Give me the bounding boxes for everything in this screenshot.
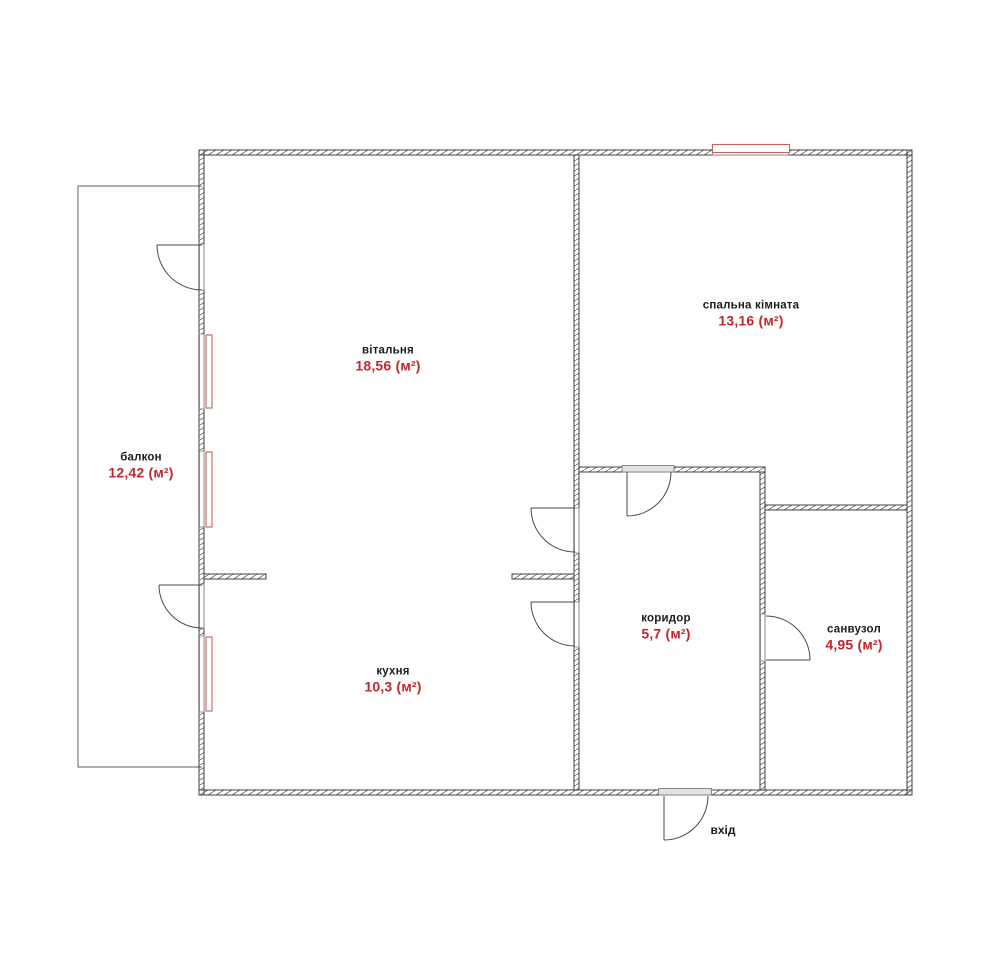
opening-living-balcony (200, 244, 205, 290)
wall-top (199, 150, 912, 155)
wall-bathroom-top (765, 505, 907, 510)
door-living-balcony (157, 245, 202, 290)
floor-plan-page: вітальня 18,56 (м²) спальна кімната 13,1… (0, 0, 999, 977)
window-section-kitchen (200, 636, 205, 712)
window-marks (206, 145, 790, 712)
outer-walls (199, 150, 912, 795)
door-kitchen-corridor (531, 602, 575, 646)
interior-walls (204, 155, 907, 790)
entrance-label: вхід (710, 823, 735, 837)
opening-living-corridor (575, 508, 580, 553)
door-bedroom (627, 472, 671, 516)
radiator-middle-window-icon (206, 452, 212, 527)
radiator-kitchen-window-icon (206, 637, 212, 711)
door-kitchen-balcony (159, 585, 202, 628)
window-section-middle (200, 451, 205, 527)
threshold-entrance-door (659, 789, 712, 796)
door-entrance (664, 796, 708, 840)
wall-kitchen-divider-left (204, 574, 266, 579)
radiator-bedroom-window-icon (713, 145, 790, 153)
opening-kitchen-balcony (200, 584, 205, 628)
wall-openings (200, 151, 789, 796)
door-bathroom (766, 616, 810, 660)
balcony-outline (78, 186, 202, 767)
wall-right (907, 150, 912, 795)
radiator-living-window-icon (206, 335, 212, 408)
door-living-corridor (531, 508, 575, 552)
wall-bottom (199, 790, 912, 795)
opening-corridor-bathroom (761, 614, 766, 661)
threshold-bedroom-door (622, 466, 674, 473)
window-section-living (200, 334, 205, 409)
wall-living-corridor (574, 155, 579, 790)
doors (157, 245, 810, 840)
opening-kitchen-corridor (575, 602, 580, 647)
floor-plan-canvas (0, 0, 999, 977)
wall-kitchen-divider-right (512, 574, 574, 579)
